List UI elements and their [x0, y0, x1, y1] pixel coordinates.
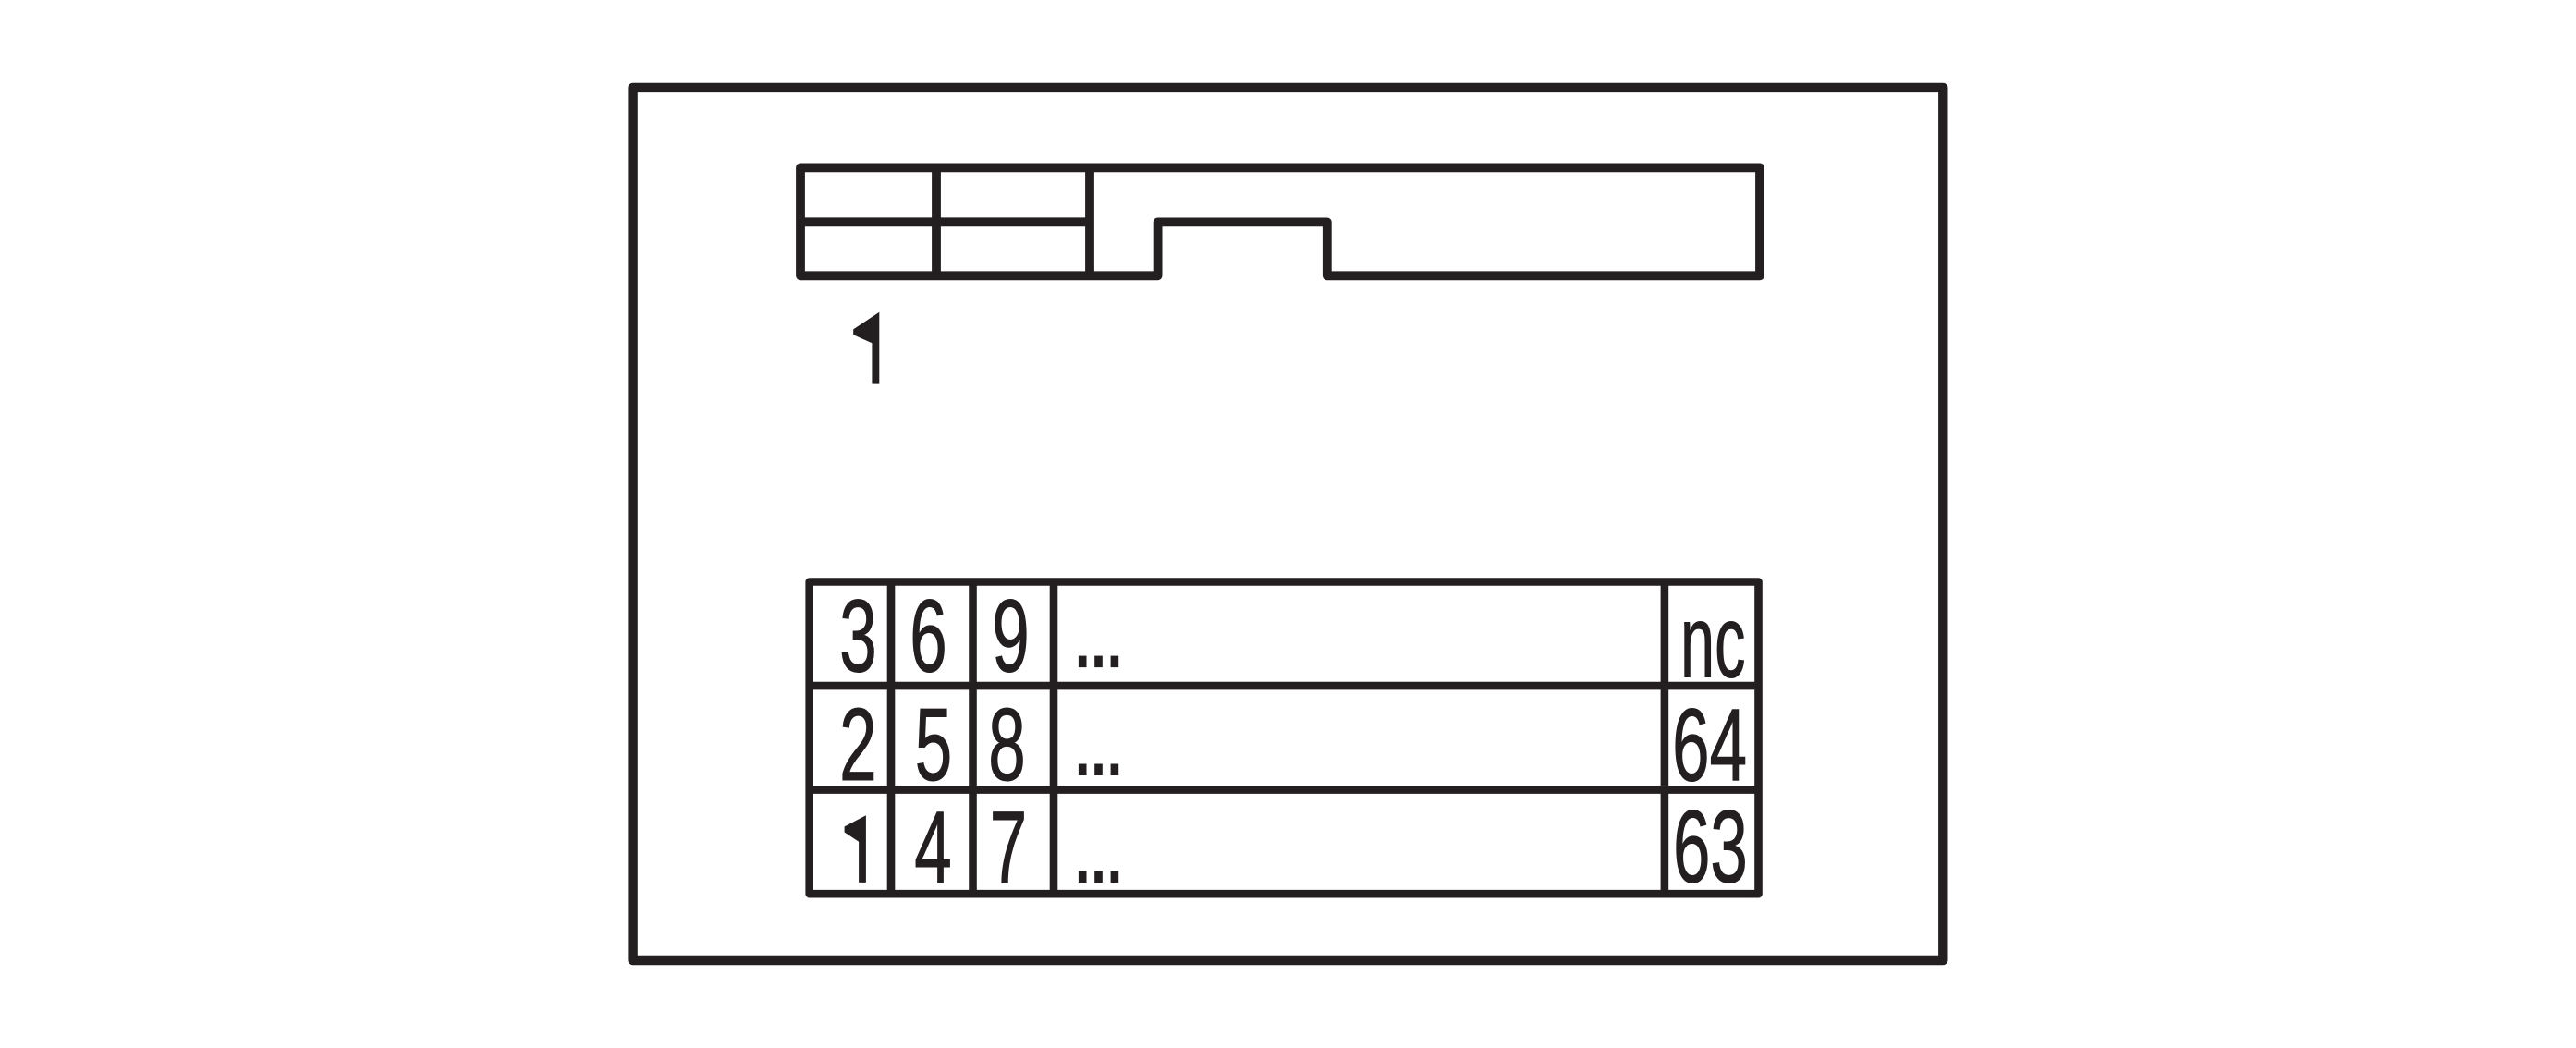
svg-text:2: 2: [839, 687, 876, 801]
svg-text:63: 63: [1673, 789, 1748, 904]
svg-text:9: 9: [992, 579, 1029, 693]
svg-text:6: 6: [910, 579, 946, 693]
svg-text:4: 4: [914, 790, 951, 905]
svg-text:5: 5: [915, 687, 952, 801]
svg-text:8: 8: [988, 687, 1025, 801]
svg-text:nc: nc: [1680, 585, 1745, 700]
svg-text:3: 3: [839, 579, 876, 693]
svg-text:7: 7: [990, 790, 1027, 905]
svg-text:64: 64: [1672, 688, 1747, 802]
